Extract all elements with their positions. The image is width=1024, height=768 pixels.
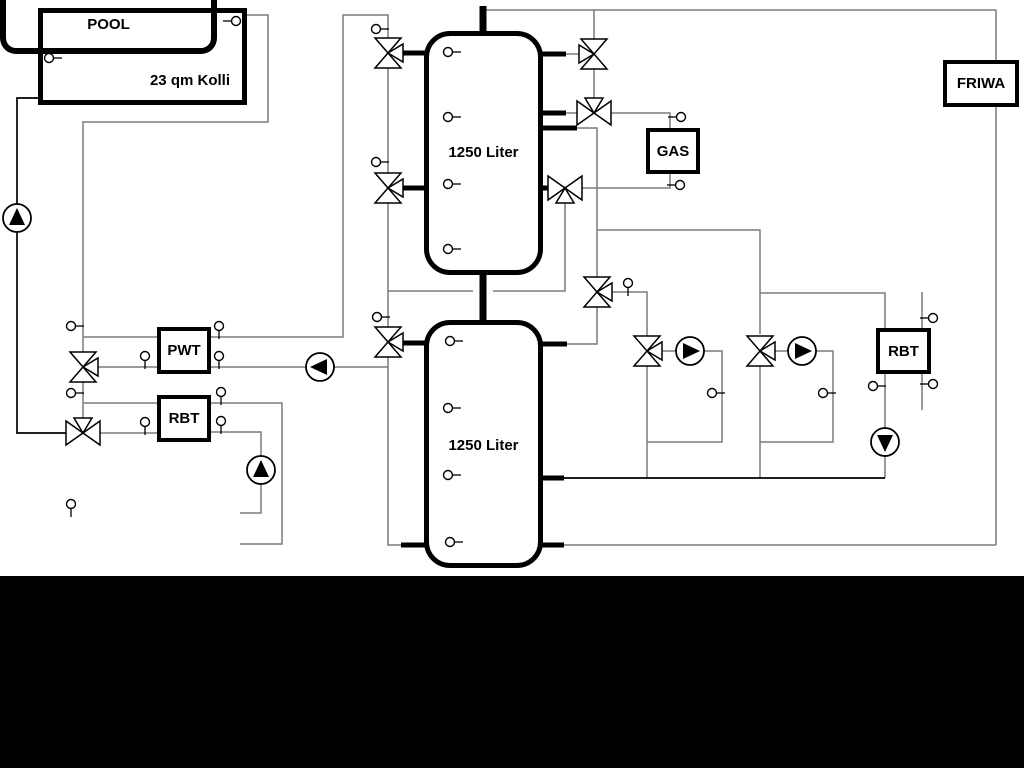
temperature-sensor-icon: [372, 158, 381, 167]
temperature-sensor-icon: [373, 313, 382, 322]
temperature-sensor-icon: [929, 314, 938, 323]
temperature-sensor-icon: [372, 25, 381, 34]
buffer-tank-top: 1250 Liter: [424, 31, 543, 275]
temperature-sensor-icon: [67, 500, 76, 509]
temperature-sensor-icon: [141, 352, 150, 361]
temperature-sensor-icon: [869, 382, 878, 391]
temperature-sensor-icon: [217, 388, 226, 397]
rbt-left-box: RBT: [157, 395, 211, 442]
temperature-sensor-icon: [676, 181, 685, 190]
collector-label: 23 qm Kolli: [150, 72, 230, 89]
temperature-sensor-icon: [677, 113, 686, 122]
rbt-right-box: RBT: [876, 328, 931, 374]
gas-label: GAS: [657, 143, 690, 160]
tank-top-label: 1250 Liter: [429, 144, 538, 161]
temperature-sensor-icon: [215, 322, 224, 331]
pwt-heat-exchanger-box: PWT: [157, 327, 211, 374]
pipe-line: [565, 306, 597, 344]
solar-collector-box: 23 qm Kolli: [38, 8, 247, 105]
friwa-box: FRIWA: [943, 60, 1019, 107]
temperature-sensor-icon: [217, 417, 226, 426]
pwt-label: PWT: [167, 342, 200, 359]
temperature-sensor-icon: [67, 389, 76, 398]
rbt-left-label: RBT: [169, 410, 200, 427]
temperature-sensor-icon: [67, 322, 76, 331]
tank-bottom-label: 1250 Liter: [429, 437, 538, 454]
rbt-right-label: RBT: [888, 343, 919, 360]
bottom-black-bar: [0, 576, 1024, 768]
friwa-label: FRIWA: [957, 75, 1005, 92]
pipe-line: [388, 66, 404, 545]
pipe-line: [582, 172, 670, 188]
gas-boiler-box: GAS: [646, 128, 700, 174]
diagram-canvas: 23 qm Kolli 1250 Liter 1250 Liter GAS FR…: [0, 0, 1024, 768]
temperature-sensor-icon: [141, 418, 150, 427]
buffer-tank-bottom: 1250 Liter: [424, 320, 543, 568]
temperature-sensor-icon: [624, 279, 633, 288]
temperature-sensor-icon: [215, 352, 224, 361]
temperature-sensor-icon: [929, 380, 938, 389]
pipe-line: [609, 292, 647, 337]
temperature-sensor-icon: [819, 389, 828, 398]
temperature-sensor-icon: [708, 389, 717, 398]
solar-pipe-line: [17, 98, 68, 433]
pipe-line: [577, 128, 597, 278]
pipe-line: [597, 230, 760, 334]
pipe-line: [760, 293, 885, 330]
